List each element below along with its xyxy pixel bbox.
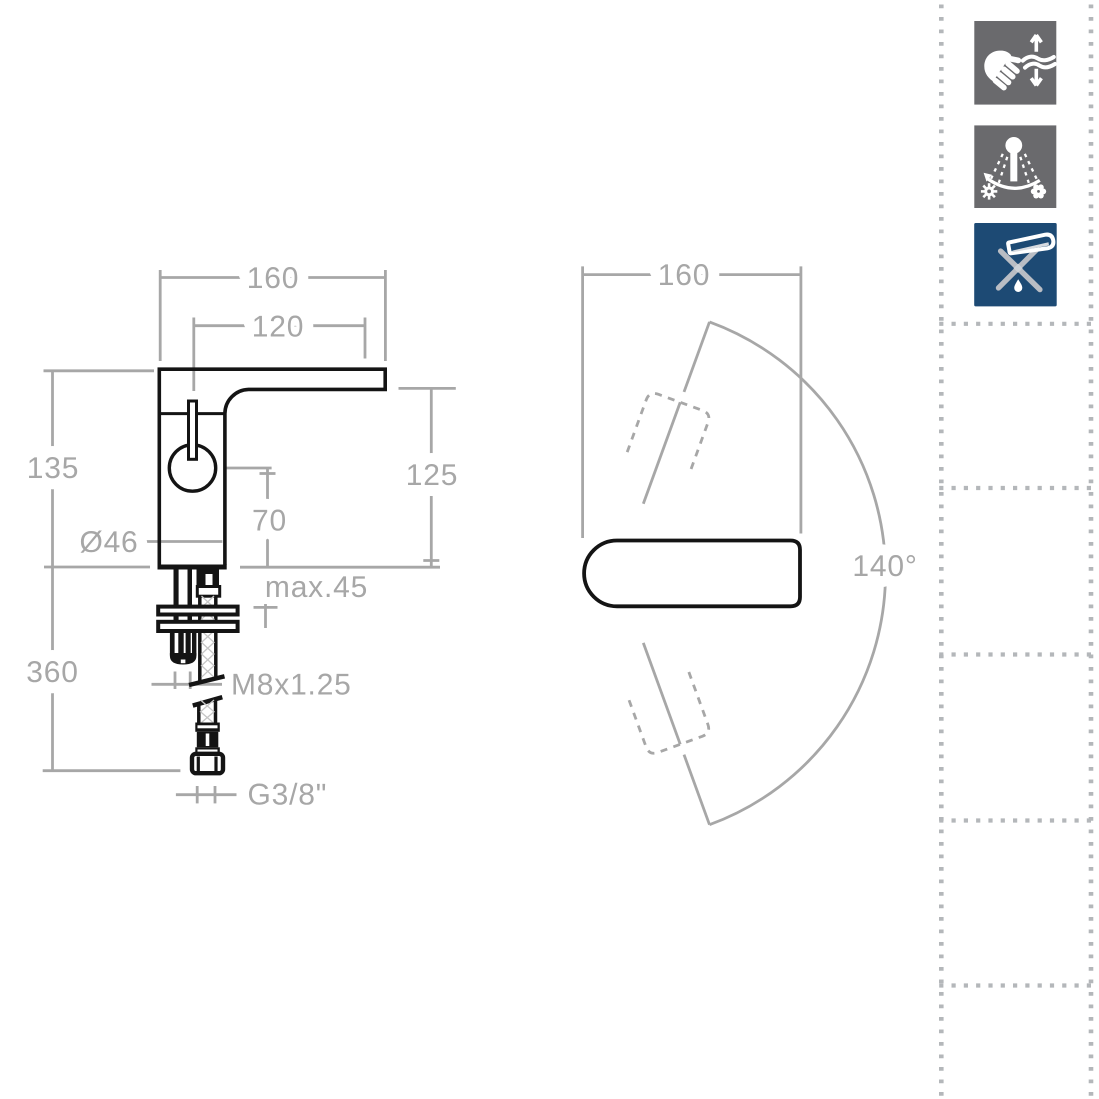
svg-text:120: 120 [252,310,304,343]
svg-text:160: 160 [247,262,299,295]
svg-text:140°: 140° [852,550,917,583]
svg-text:160: 160 [658,259,710,292]
svg-text:max.45: max.45 [265,571,368,604]
svg-text:135: 135 [27,452,79,485]
svg-text:125: 125 [406,459,458,492]
svg-text:M8x1.25: M8x1.25 [231,669,352,702]
svg-text:70: 70 [252,505,287,538]
svg-text:G3/8": G3/8" [248,779,328,812]
svg-text:360: 360 [26,656,78,689]
svg-text:Ø46: Ø46 [79,526,138,559]
